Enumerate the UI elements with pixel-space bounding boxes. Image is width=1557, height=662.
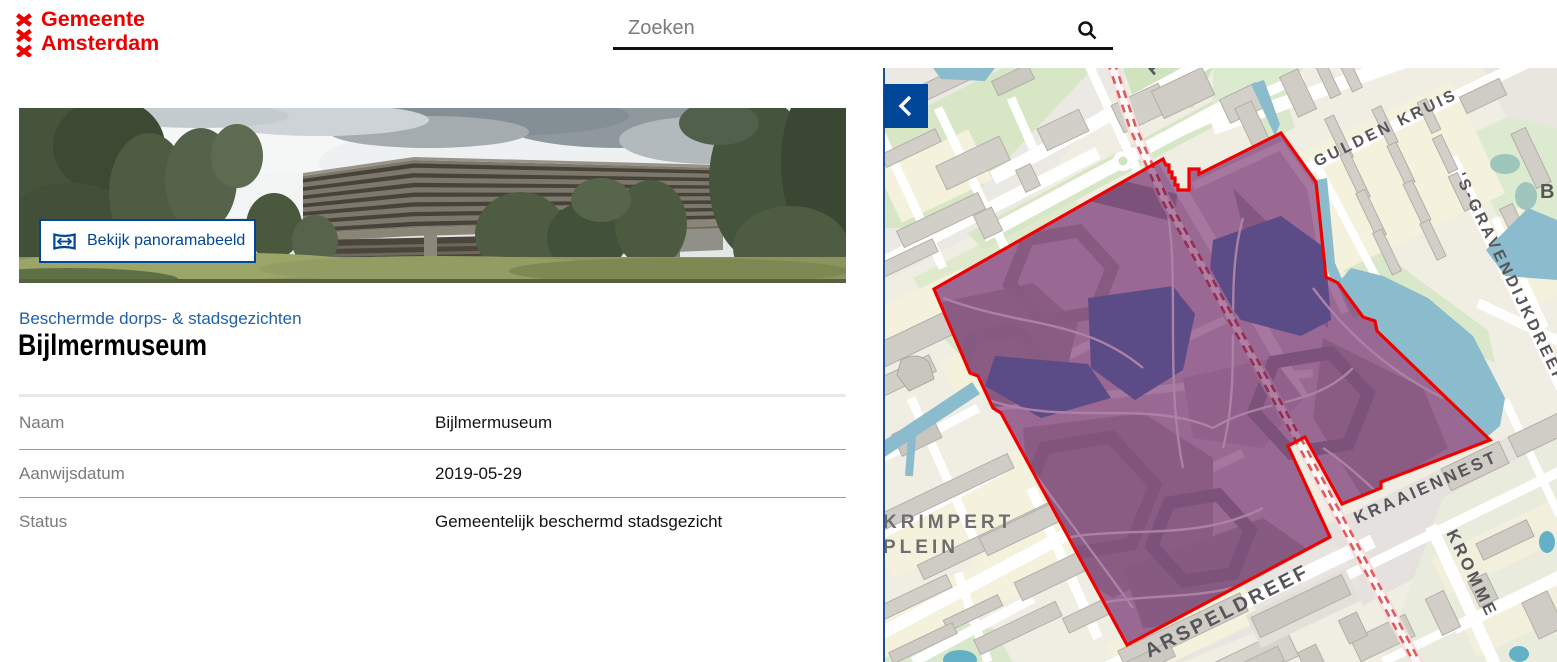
svg-text:KRIMPERT: KRIMPERT [883,512,1014,533]
svg-text:Gemeente: Gemeente [41,7,145,31]
svg-text:PLEIN: PLEIN [883,537,959,558]
svg-text:Amsterdam: Amsterdam [41,31,159,55]
svg-text:B: B [1540,181,1557,203]
